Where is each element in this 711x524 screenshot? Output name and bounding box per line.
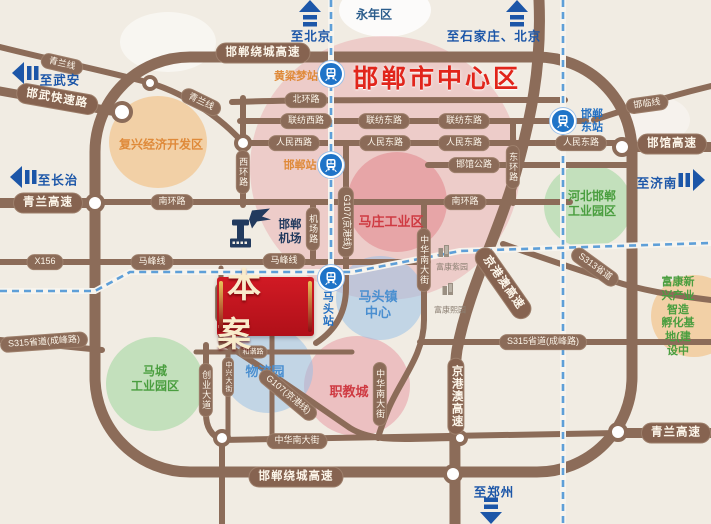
- road-label-pill: 人民东路: [438, 135, 490, 151]
- direction-arrow-left: [15, 59, 37, 87]
- direction-arrow-label: 至北京: [291, 26, 332, 45]
- road-label-pill: S315省道(成峰路): [499, 334, 587, 350]
- road-label-pill: 邯馆高速: [637, 134, 707, 155]
- road-label-pill: 青兰高速: [641, 423, 711, 444]
- road-label-pill: 中华南大街: [266, 433, 327, 449]
- road-label-pill: 京港澳高速: [447, 358, 464, 435]
- road-label-pill: 青兰高速: [13, 193, 83, 214]
- road-junctions: [87, 77, 630, 482]
- road-label-pill: 北环路: [284, 92, 327, 108]
- project-banner: 本案: [217, 277, 314, 336]
- banner-ornament: [219, 281, 223, 332]
- banner-ornament: [308, 281, 312, 332]
- road-label-pill: 联纺东路: [438, 113, 490, 129]
- airport-label: 邯郸 机场: [279, 219, 302, 247]
- station-label: 邯郸站: [284, 160, 317, 173]
- direction-arrow-label: 至长治: [38, 170, 79, 189]
- building-icon: [439, 245, 450, 259]
- road-label-pill: 西环路: [236, 150, 250, 194]
- city-center-title: 邯郸市中心区: [353, 59, 521, 95]
- metro-station-icon: [318, 152, 344, 178]
- road-label-pill: 东环路: [506, 145, 520, 189]
- road-label-pill: 中华南大街: [417, 228, 431, 292]
- direction-arrow-right: [680, 166, 702, 194]
- road-label-pill: 南环路: [150, 194, 193, 210]
- project-banner-label: 本案: [217, 258, 314, 356]
- beihuan-rd: [232, 100, 565, 102]
- road-label-pill: 邯馆公路: [448, 157, 500, 173]
- road-label-pill: 创业大道: [199, 363, 213, 417]
- location-map: 邯郸绕城高速邯郸绕城高速青兰高速青兰高速邯馆高速邯武快速路京港澳高速京港澳高速青…: [0, 0, 711, 524]
- road-label-pill: X156: [26, 254, 63, 270]
- metro-station-icon: [318, 265, 344, 291]
- direction-arrow-up: [299, 0, 321, 28]
- road-label-pill: 人民东路: [555, 135, 607, 151]
- station-label: 马头站: [321, 291, 334, 327]
- road-label-pill: 中兴大街: [222, 357, 234, 397]
- road-label-pill: G107(京港线): [338, 186, 354, 257]
- metro-station-icon: [550, 108, 576, 134]
- direction-arrow-label: 至石家庄、北京: [447, 26, 542, 45]
- road-label-pill: 人民东路: [359, 135, 411, 151]
- road-label-pill: 人民西路: [268, 135, 320, 151]
- station-label: 邯郸 东站: [581, 108, 603, 133]
- station-label: 黄粱梦站: [274, 71, 318, 84]
- road-label-pill: 南环路: [443, 194, 486, 210]
- road-label-pill: 中华南大街: [373, 362, 387, 426]
- road-label-pill: 邯郸绕城高速: [216, 43, 311, 64]
- direction-arrow-label: 至郑州: [474, 482, 515, 501]
- building-icon: [443, 283, 454, 297]
- direction-arrow-left: [13, 163, 35, 191]
- road-label-pill: 邯郸绕城高速: [249, 467, 344, 488]
- direction-arrow-label: 至武安: [40, 70, 81, 89]
- road-label-pill: 马峰线: [130, 254, 173, 270]
- direction-arrow-up: [506, 0, 528, 28]
- airport-icon: [228, 208, 272, 255]
- road-label-pill: 机场路: [306, 207, 320, 251]
- road-label-pill: 联纺西路: [280, 113, 332, 129]
- direction-arrow-label: 至济南: [637, 173, 678, 192]
- metro-station-icon: [318, 61, 344, 87]
- road-label-pill: 联纺东路: [358, 113, 410, 129]
- building-label: 富康熙园: [434, 305, 466, 316]
- building-label: 富康紫园: [436, 262, 468, 273]
